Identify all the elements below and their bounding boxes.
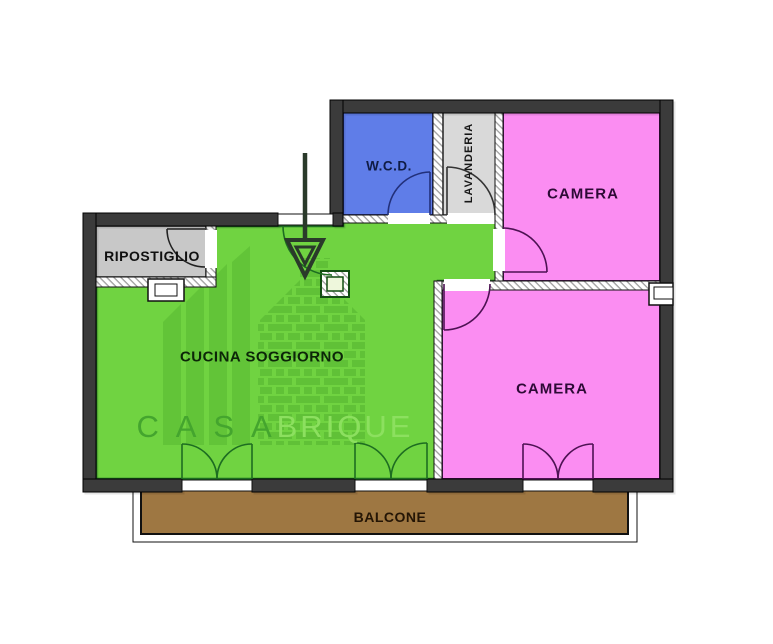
room-label-cucina-soggiorno: CUCINA SOGGIORNO	[180, 349, 344, 366]
room-label-lavanderia: LAVANDERIA	[463, 123, 475, 203]
watermark-brand-secondary: BRIQUE	[277, 409, 414, 444]
floor-plan-drawing	[0, 0, 773, 644]
floor-plan: RIPOSTIGLIO W.C.D. LAVANDERIA CAMERA CAM…	[0, 0, 773, 644]
room-label-balcone: BALCONE	[354, 509, 427, 525]
wall-wcd-lavanderia	[433, 110, 443, 215]
room-label-wcd: W.C.D.	[366, 159, 412, 174]
watermark-brand: C A S ABRIQUE	[137, 409, 414, 445]
room-label-camera-top: CAMERA	[547, 186, 619, 203]
wall-niche	[649, 283, 673, 305]
watermark-brand-primary: C A S A	[137, 409, 277, 444]
room-label-camera-bottom: CAMERA	[516, 381, 588, 398]
structural-column	[148, 279, 184, 301]
room-label-ripostiglio: RIPOSTIGLIO	[104, 248, 200, 264]
